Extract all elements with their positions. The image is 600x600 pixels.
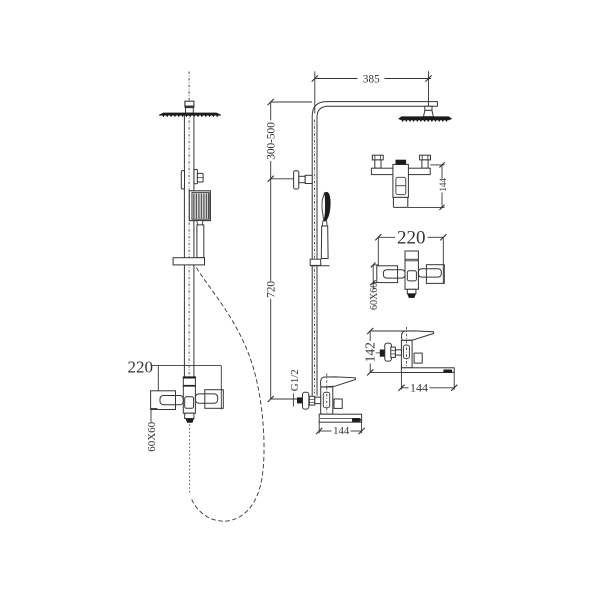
svg-text:220: 220 [128,358,154,377]
svg-text:300-500: 300-500 [266,122,278,160]
svg-text:220: 220 [397,228,426,249]
svg-text:144: 144 [438,178,448,192]
svg-text:144: 144 [333,425,350,437]
svg-text:G1/2: G1/2 [289,369,301,391]
svg-text:60X60: 60X60 [369,283,380,310]
svg-text:385: 385 [363,73,380,85]
svg-text:144: 144 [410,380,428,394]
svg-text:142: 142 [363,342,378,362]
svg-text:720: 720 [266,281,278,298]
svg-text:60X60: 60X60 [146,421,158,451]
